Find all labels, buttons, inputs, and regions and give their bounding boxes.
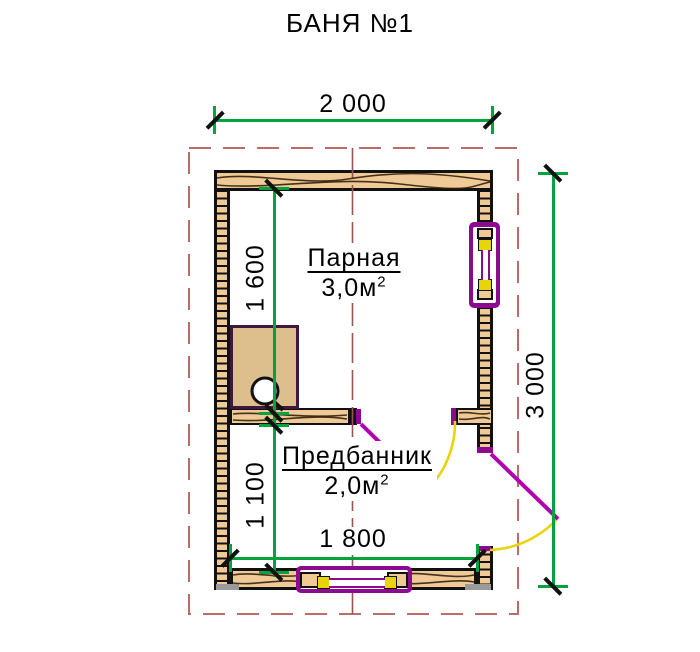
wall-left	[214, 190, 230, 590]
entrance-door-swing-arc	[490, 519, 557, 550]
wall-base-right	[465, 584, 491, 590]
floor-plan: БАНЯ №1	[0, 0, 700, 652]
dim-text-total-height: 3 000	[524, 348, 549, 422]
plan-title: БАНЯ №1	[286, 8, 414, 39]
dim-line-room-depths	[273, 188, 276, 577]
room-area-value: 3,0м	[321, 274, 377, 302]
window-bottom-pane-right	[384, 576, 397, 589]
wall-top	[214, 170, 493, 191]
window-right-glazing	[481, 250, 490, 280]
entrance-door-leaf	[491, 454, 558, 519]
window-right-wall-stub-top	[477, 228, 493, 239]
entrance-door-jamb-top	[477, 447, 493, 453]
wall-right-middle	[477, 307, 493, 453]
room-area-parnaya: 3,0м2	[307, 273, 400, 303]
wall-base-left	[216, 584, 239, 590]
wall-right-upper	[477, 190, 493, 223]
dim-line-total-width	[214, 119, 493, 122]
room-name-predbannik: Предбанник	[282, 441, 432, 471]
dim-line-inner-width	[230, 557, 477, 560]
interior-door-jamb-right	[451, 408, 456, 425]
dim-text-parnaya-depth: 1 600	[244, 241, 269, 315]
dim-text-total-width: 2 000	[316, 92, 390, 117]
window-right-pane-bottom	[478, 279, 492, 291]
dim-line-total-height	[552, 173, 555, 587]
room-area-predbannik: 2,0м2	[282, 471, 432, 501]
partition-stub-right	[456, 408, 493, 425]
room-label-parnaya: Парная 3,0м2	[302, 243, 405, 303]
room-area-sup: 2	[380, 472, 389, 489]
window-bottom-glazing	[329, 578, 385, 588]
stove	[230, 325, 299, 409]
room-label-predbannik: Предбанник 2,0м2	[277, 441, 437, 501]
room-area-value: 2,0м	[324, 472, 380, 500]
dim-text-inner-width: 1 800	[316, 527, 390, 552]
room-area-sup: 2	[377, 274, 386, 291]
room-name-parnaya: Парная	[307, 243, 400, 273]
dim-text-predbannik-depth: 1 100	[244, 458, 269, 532]
partition-wall	[230, 408, 355, 425]
interior-door-jamb-left	[356, 409, 361, 424]
